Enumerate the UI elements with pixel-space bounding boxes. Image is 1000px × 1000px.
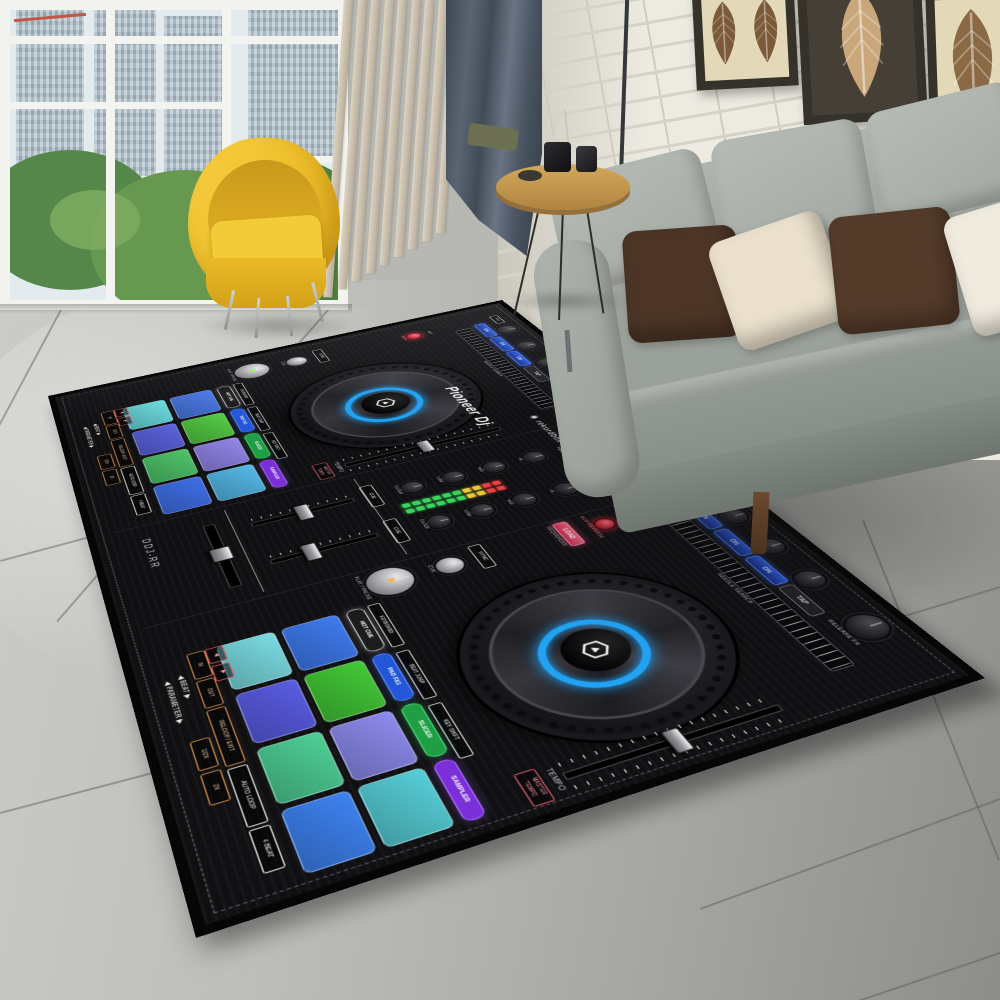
sofa-leg — [750, 492, 769, 555]
sofa-pillow — [827, 206, 961, 336]
city-tower — [94, 10, 156, 176]
foliage-highlight — [50, 190, 140, 250]
black-cube-clock — [544, 142, 571, 172]
side-table — [496, 108, 646, 323]
leaf-art-frame — [691, 0, 799, 91]
bowl-decor — [518, 170, 542, 181]
window-mullion — [10, 36, 338, 44]
table-shadow — [502, 290, 628, 312]
chair-shadow — [198, 312, 358, 340]
black-cube-decor — [576, 146, 597, 172]
yellow-armchair — [188, 132, 358, 342]
chair-front — [206, 258, 326, 308]
living-room-scene: FX1ONONONTAPNEEDLE SEARCHREVSLIPSYNCCUE▶… — [0, 0, 1000, 1000]
window-mullion — [10, 102, 226, 109]
window-mullion — [106, 10, 115, 300]
